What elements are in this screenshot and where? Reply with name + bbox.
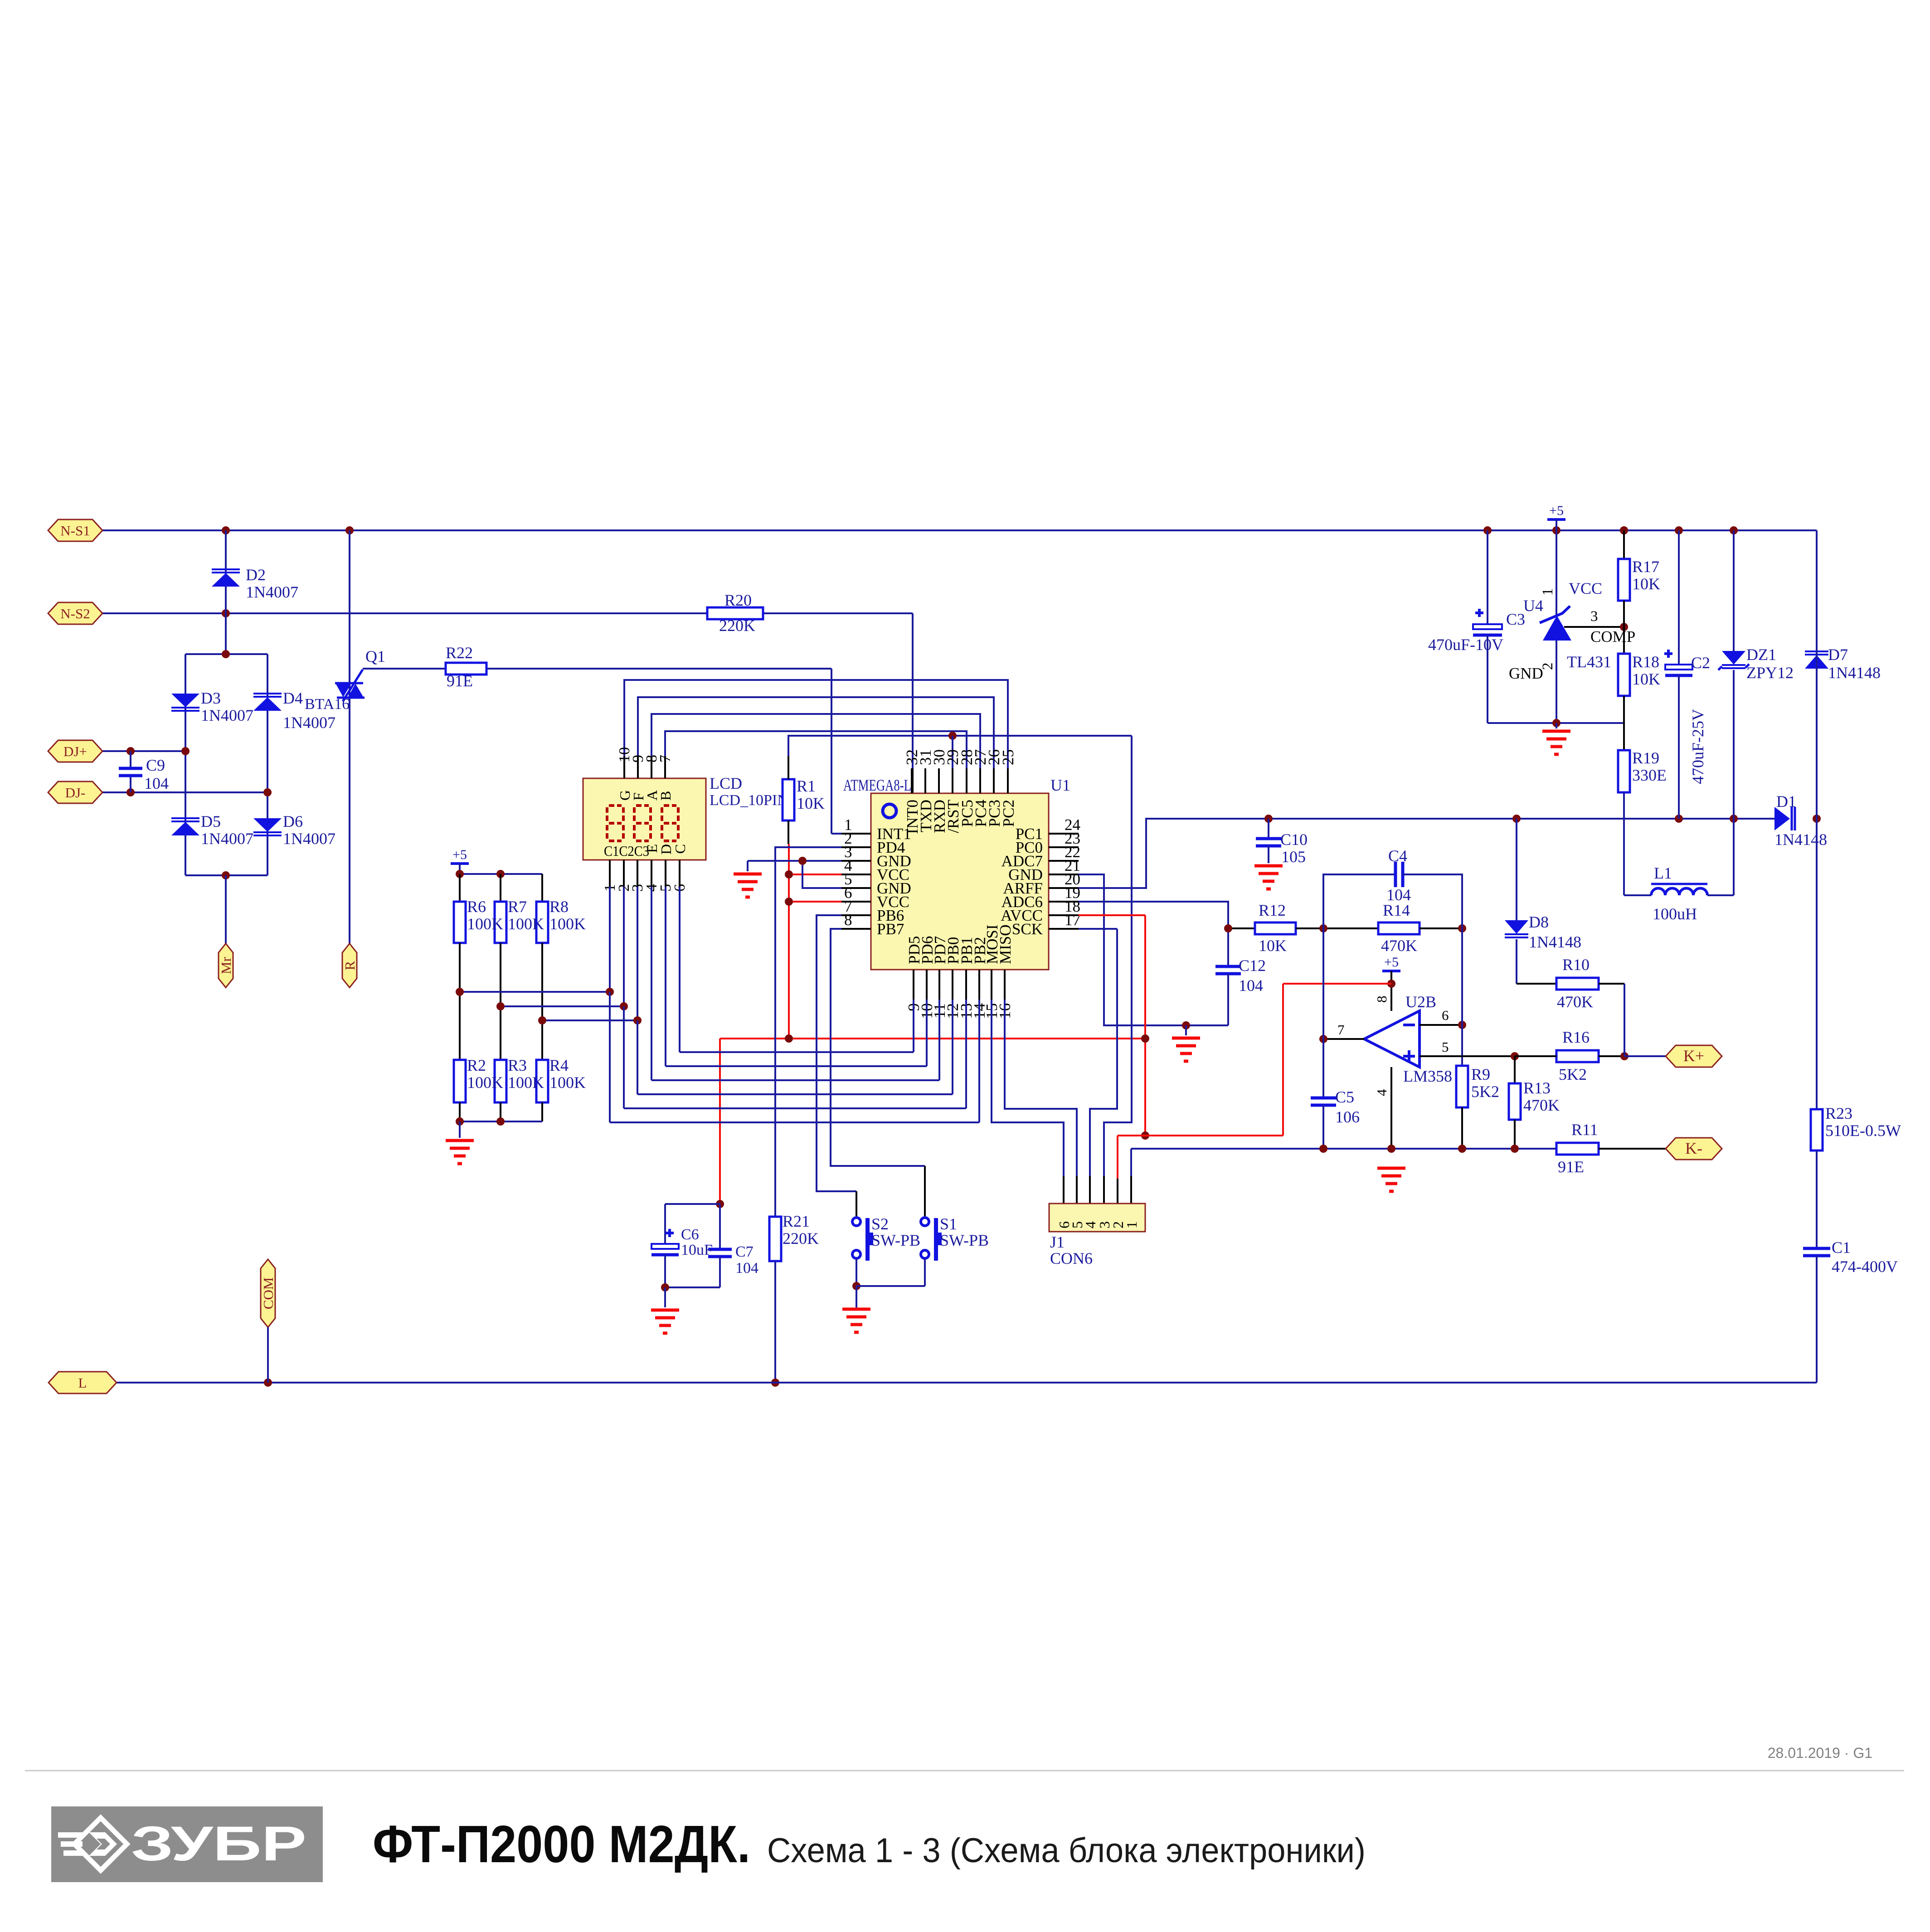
svg-text:100uH: 100uH <box>1653 905 1697 923</box>
svg-text:100K: 100K <box>549 915 586 933</box>
svg-text:7: 7 <box>657 755 674 762</box>
svg-text:R1: R1 <box>797 777 816 795</box>
svg-text:DJ+: DJ+ <box>63 743 87 759</box>
svg-text:10K: 10K <box>797 794 825 812</box>
svg-text:C1: C1 <box>1832 1238 1851 1257</box>
svg-text:510E-0.5W: 510E-0.5W <box>1825 1121 1901 1140</box>
svg-text:104: 104 <box>1386 886 1411 904</box>
svg-text:D7: D7 <box>1828 646 1848 664</box>
svg-text:C10: C10 <box>1280 830 1308 849</box>
svg-text:PB7: PB7 <box>877 920 904 938</box>
svg-text:1N4007: 1N4007 <box>283 714 335 732</box>
svg-text:1N4007: 1N4007 <box>201 830 253 848</box>
svg-text:1: 1 <box>1123 1221 1140 1228</box>
svg-text:R14: R14 <box>1383 901 1410 919</box>
svg-text:Схема 1 - 3 (Схема блока элект: Схема 1 - 3 (Схема блока электроники) <box>767 1831 1366 1870</box>
svg-text:D4: D4 <box>283 689 303 707</box>
svg-text:R4: R4 <box>549 1056 569 1074</box>
svg-text:7: 7 <box>1337 1022 1345 1038</box>
svg-text:104: 104 <box>144 774 169 792</box>
svg-text:R20: R20 <box>724 591 752 609</box>
svg-text:470K: 470K <box>1557 993 1593 1011</box>
svg-text:BTA16: BTA16 <box>305 696 350 713</box>
svg-text:104: 104 <box>1239 976 1263 995</box>
svg-text:N-S2: N-S2 <box>60 606 90 621</box>
svg-text:4: 4 <box>1374 1089 1390 1096</box>
svg-text:17: 17 <box>1065 911 1080 929</box>
svg-text:R7: R7 <box>508 898 527 916</box>
svg-text:6: 6 <box>1442 1007 1449 1023</box>
svg-text:R18: R18 <box>1632 653 1659 671</box>
svg-text:U1: U1 <box>1050 776 1070 794</box>
svg-text:U2B: U2B <box>1405 993 1436 1011</box>
svg-text:D6: D6 <box>283 812 303 830</box>
svg-text:R3: R3 <box>508 1056 527 1074</box>
svg-text:C7: C7 <box>735 1243 754 1260</box>
svg-text:10uF: 10uF <box>681 1242 713 1258</box>
svg-text:R21: R21 <box>783 1212 810 1230</box>
svg-text:C6: C6 <box>681 1226 699 1243</box>
svg-text:5K2: 5K2 <box>1471 1083 1499 1101</box>
svg-text:100K: 100K <box>549 1073 586 1092</box>
svg-text:+5: +5 <box>452 847 467 862</box>
svg-text:Q1: Q1 <box>365 647 385 665</box>
svg-text:100K: 100K <box>467 915 503 933</box>
svg-text:VCC: VCC <box>1569 579 1602 597</box>
svg-text:R10: R10 <box>1562 956 1590 974</box>
svg-text:J1: J1 <box>1050 1233 1065 1251</box>
svg-text:R13: R13 <box>1523 1079 1551 1097</box>
svg-text:CON6: CON6 <box>1050 1249 1093 1267</box>
svg-text:R16: R16 <box>1562 1028 1590 1046</box>
svg-text:LCD_10PIN: LCD_10PIN <box>710 792 788 809</box>
svg-text:ZPY12: ZPY12 <box>1746 664 1794 682</box>
svg-text:U4: U4 <box>1523 597 1543 615</box>
svg-text:N-S1: N-S1 <box>60 523 90 539</box>
svg-text:R9: R9 <box>1471 1065 1490 1083</box>
svg-text:TL431: TL431 <box>1567 653 1611 671</box>
svg-text:C: C <box>672 844 688 854</box>
svg-text:K-: K- <box>1685 1139 1702 1157</box>
svg-text:470K: 470K <box>1523 1096 1560 1114</box>
svg-text:1N4007: 1N4007 <box>283 830 335 848</box>
svg-text:C4: C4 <box>1388 847 1407 865</box>
svg-text:474-400V: 474-400V <box>1832 1257 1898 1276</box>
svg-text:L1: L1 <box>1654 864 1672 882</box>
svg-text:R8: R8 <box>549 898 569 916</box>
svg-text:LM358: LM358 <box>1403 1067 1452 1085</box>
svg-text:DZ1: DZ1 <box>1746 646 1776 664</box>
svg-text:D5: D5 <box>201 812 221 830</box>
svg-text:MISO: MISO <box>997 924 1014 964</box>
svg-text:1N4007: 1N4007 <box>201 706 253 724</box>
svg-text:470uF-25V: 470uF-25V <box>1689 709 1707 784</box>
svg-text:DJ-: DJ- <box>65 785 86 801</box>
svg-text:L: L <box>78 1375 87 1391</box>
svg-text:R11: R11 <box>1571 1121 1598 1139</box>
svg-text:R19: R19 <box>1632 749 1659 767</box>
svg-text:10K: 10K <box>1632 670 1660 688</box>
svg-text:C1C2C3: C1C2C3 <box>604 843 649 859</box>
svg-text:1: 1 <box>1540 588 1556 596</box>
svg-text:470K: 470K <box>1381 937 1417 955</box>
svg-text:S2: S2 <box>871 1215 889 1233</box>
svg-text:100K: 100K <box>467 1073 503 1092</box>
svg-text:R2: R2 <box>467 1056 486 1074</box>
svg-text:Mr: Mr <box>218 956 234 974</box>
svg-text:D3: D3 <box>201 689 221 707</box>
svg-text:1N4148: 1N4148 <box>1774 830 1827 849</box>
svg-text:ATMEGA8-L: ATMEGA8-L <box>843 776 911 794</box>
svg-text:100K: 100K <box>508 915 544 933</box>
svg-text:8: 8 <box>1374 996 1390 1003</box>
svg-text:SW-PB: SW-PB <box>871 1231 920 1249</box>
svg-text:R17: R17 <box>1632 558 1659 576</box>
svg-text:1N4148: 1N4148 <box>1828 664 1881 682</box>
svg-text:220K: 220K <box>783 1229 819 1248</box>
svg-text:D2: D2 <box>246 566 266 584</box>
svg-text:R12: R12 <box>1259 901 1286 919</box>
svg-text:5K2: 5K2 <box>1559 1065 1587 1083</box>
svg-text:91E: 91E <box>1558 1158 1584 1176</box>
svg-text:D8: D8 <box>1529 913 1549 931</box>
svg-text:104: 104 <box>735 1260 758 1277</box>
svg-text:106: 106 <box>1335 1108 1360 1126</box>
svg-text:S1: S1 <box>940 1215 957 1233</box>
svg-text:R: R <box>342 961 358 970</box>
svg-text:COM: COM <box>260 1277 276 1310</box>
svg-text:8: 8 <box>844 911 852 929</box>
svg-text:5: 5 <box>1442 1039 1449 1055</box>
svg-text:C12: C12 <box>1239 956 1266 975</box>
svg-text:100K: 100K <box>508 1073 544 1092</box>
svg-text:10K: 10K <box>1259 937 1287 955</box>
svg-text:25: 25 <box>999 749 1017 765</box>
svg-text:C3: C3 <box>1506 610 1525 628</box>
svg-text:C9: C9 <box>146 756 165 774</box>
svg-text:R22: R22 <box>446 644 473 662</box>
svg-text:3: 3 <box>1590 608 1598 625</box>
svg-text:1N4007: 1N4007 <box>246 583 298 601</box>
svg-text:C5: C5 <box>1335 1088 1354 1106</box>
svg-text:LCD: LCD <box>710 774 742 792</box>
svg-text:ЗУБР: ЗУБР <box>131 1816 306 1871</box>
svg-text:R6: R6 <box>467 898 486 916</box>
svg-text:R23: R23 <box>1825 1104 1852 1122</box>
svg-text:D1: D1 <box>1776 792 1796 811</box>
svg-text:10K: 10K <box>1632 575 1660 593</box>
svg-text:C2: C2 <box>1691 654 1710 672</box>
svg-text:28.01.2019 · G1: 28.01.2019 · G1 <box>1768 1745 1872 1761</box>
svg-text:330E: 330E <box>1632 766 1667 784</box>
svg-text:K+: K+ <box>1683 1047 1704 1065</box>
svg-text:+5: +5 <box>1384 955 1399 970</box>
svg-text:+5: +5 <box>1549 503 1564 518</box>
svg-text:1N4148: 1N4148 <box>1529 933 1581 951</box>
svg-text:ФТ-П2000 М2ДК.: ФТ-П2000 М2ДК. <box>373 1815 750 1874</box>
svg-text:COMP: COMP <box>1590 628 1635 646</box>
svg-text:SCK: SCK <box>1012 920 1043 938</box>
svg-text:220K: 220K <box>719 616 755 635</box>
svg-text:B: B <box>657 791 674 801</box>
svg-text:470uF-10V: 470uF-10V <box>1428 636 1503 654</box>
svg-text:105: 105 <box>1281 848 1306 866</box>
svg-text:91E: 91E <box>447 672 473 690</box>
svg-text:SW-PB: SW-PB <box>940 1231 989 1249</box>
svg-text:PC2: PC2 <box>1000 800 1017 827</box>
svg-text:GND: GND <box>1509 665 1543 682</box>
